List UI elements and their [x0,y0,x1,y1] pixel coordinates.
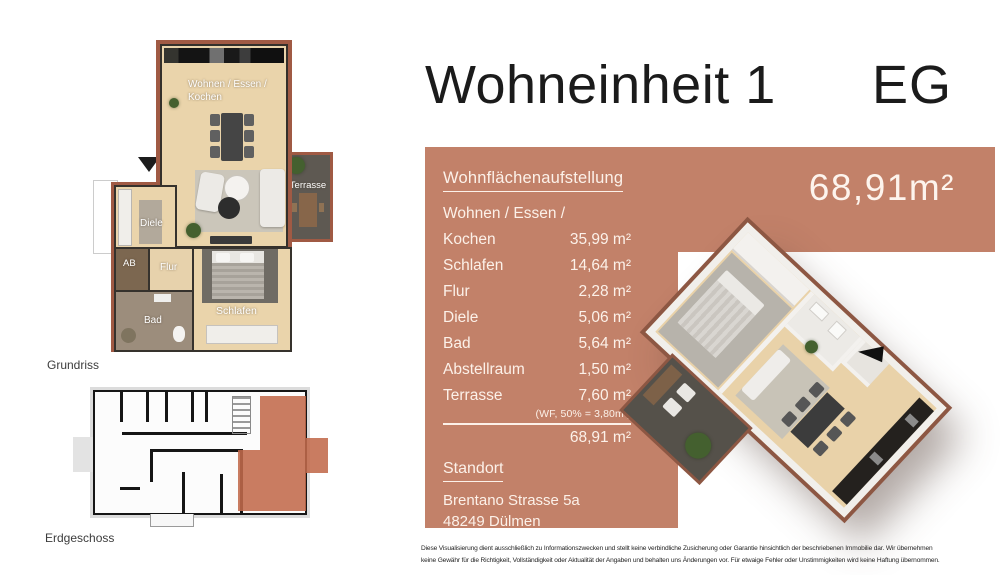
wall [146,392,149,422]
area-table-heading: Wohnflächenaufstellung [443,169,623,192]
room-schlafen: Schlafen [192,247,292,352]
stool-icon [292,203,297,212]
shower-drain-icon [121,328,136,343]
disclaimer-line2: keine Gewähr für die Richtigkeit, Vollst… [421,555,981,567]
area-row: Schlafen 14,64 m² [443,253,631,279]
floorplan-2d: Wohnen / Essen / Kochen Terr [105,38,340,360]
area-row-label: Flur [443,283,470,301]
bed [212,251,264,299]
kitchen-counter [164,48,284,63]
plant-icon [169,98,179,108]
wall [191,392,194,422]
area-row-label: Terrasse [443,387,502,405]
chair-icon [244,114,254,126]
duvet [212,263,264,299]
area-row-label: Bad [443,335,471,353]
terrace-note: (WF, 50% = 3,80m²) [443,408,631,420]
schematic-entrance [150,514,194,527]
chair-icon [210,130,220,142]
chair-icon [210,146,220,158]
caption-grundriss: Grundriss [47,358,99,372]
address-line2: 48249 Dülmen [443,511,631,532]
area-row-value: 2,28 m² [578,283,631,301]
room-label-ab: AB [123,257,136,270]
dining-set [210,112,254,162]
room-label-schlafen: Schlafen [216,305,257,318]
toilet-icon [827,320,847,340]
area-row-value: 1,50 m² [578,361,631,379]
area-row: Bad 5,64 m² [443,331,631,357]
wall [182,472,185,513]
area-row: Flur 2,28 m² [443,279,631,305]
pillow-icon [240,253,254,262]
area-row-label: Wohnen / Essen / [443,205,565,223]
room-label-bad: Bad [144,314,162,327]
room-label-living: Wohnen / Essen / Kochen [188,78,267,104]
area-row-label: Schlafen [443,257,503,275]
total-area-large: 68,91m² [809,167,955,209]
sink-icon [809,301,830,321]
toilet-icon [173,326,185,342]
area-row-value: 5,64 m² [578,335,631,353]
wall [120,392,123,422]
chair-icon [826,425,843,442]
room-label-diele: Diele [140,217,163,230]
room-flur: Flur [148,247,196,294]
room-diele: Diele [114,185,177,253]
caption-erdgeschoss: Erdgeschoss [45,531,114,545]
address-line1: Brentano Strasse 5a [443,490,631,511]
page-title: Wohneinheit 1 [425,54,776,116]
wardrobe [206,325,278,344]
area-row-value: 14,64 m² [570,257,631,275]
dining-table [221,113,243,161]
area-row: Wohnen / Essen / [443,201,631,227]
area-row: Terrasse 7,60 m² [443,383,631,409]
stairs-icon [232,396,251,434]
room-label-terrace: Terrasse [286,179,330,192]
terrace-table [299,193,317,227]
area-row: Diele 5,06 m² [443,305,631,331]
north-arrow-icon [138,157,160,172]
schematic-bay-left [73,437,93,472]
plant-icon [680,427,717,464]
direction-marker-icon [857,344,884,363]
room-label-flur: Flur [160,261,177,274]
area-total: 68,91 m² [443,425,631,451]
wall [120,487,140,490]
disclaimer: Diese Visualisierung dient ausschließlic… [421,543,981,566]
area-row: Kochen 35,99 m² [443,227,631,253]
stool-icon [319,203,324,212]
sofa [260,169,285,227]
page-header: Wohneinheit 1 EG [425,54,952,116]
area-row-label: Abstellraum [443,361,525,379]
room-terrace: Terrasse [286,155,330,239]
room-label-living-line1: Wohnen / Essen / [188,78,267,91]
wall [150,449,240,452]
floor-tag: EG [872,54,952,116]
pillow-icon [216,253,230,262]
chair-icon [244,130,254,142]
address: Brentano Strasse 5a 48249 Dülmen [443,490,631,532]
chair-icon [839,411,856,428]
chair-icon [210,114,220,126]
area-row-label: Kochen [443,231,496,249]
plant-icon [288,157,305,174]
wardrobe [118,189,132,246]
cooktop-icon [905,413,919,427]
area-row-label: Diele [443,309,478,327]
room-label-living-line2: Kochen [188,91,267,104]
room-abstellraum: AB [114,247,152,294]
wall [150,449,153,482]
wall [122,432,247,435]
area-row-value: 7,60 m² [578,387,631,405]
room-living: Wohnen / Essen / Kochen [160,44,288,248]
armchair [676,382,697,402]
wall [205,392,208,422]
area-table: Wohnflächenaufstellung Wohnen / Essen / … [443,169,631,532]
disclaimer-line1: Diese Visualisierung dient ausschließlic… [421,543,981,555]
sink-icon [154,294,171,302]
side-table [218,197,240,219]
chair-icon [244,146,254,158]
chair-icon [812,440,829,457]
sink-icon [869,451,883,465]
armchair [662,397,683,417]
wall [220,474,223,513]
area-row: Abstellraum 1,50 m² [443,357,631,383]
tv-sideboard [210,236,252,244]
area-row-value: 35,99 m² [570,231,631,249]
room-bad: Bad [114,290,196,352]
plant-icon [186,223,201,238]
location-heading: Standort [443,460,503,482]
wall [165,392,168,422]
area-row-value: 5,06 m² [578,309,631,327]
